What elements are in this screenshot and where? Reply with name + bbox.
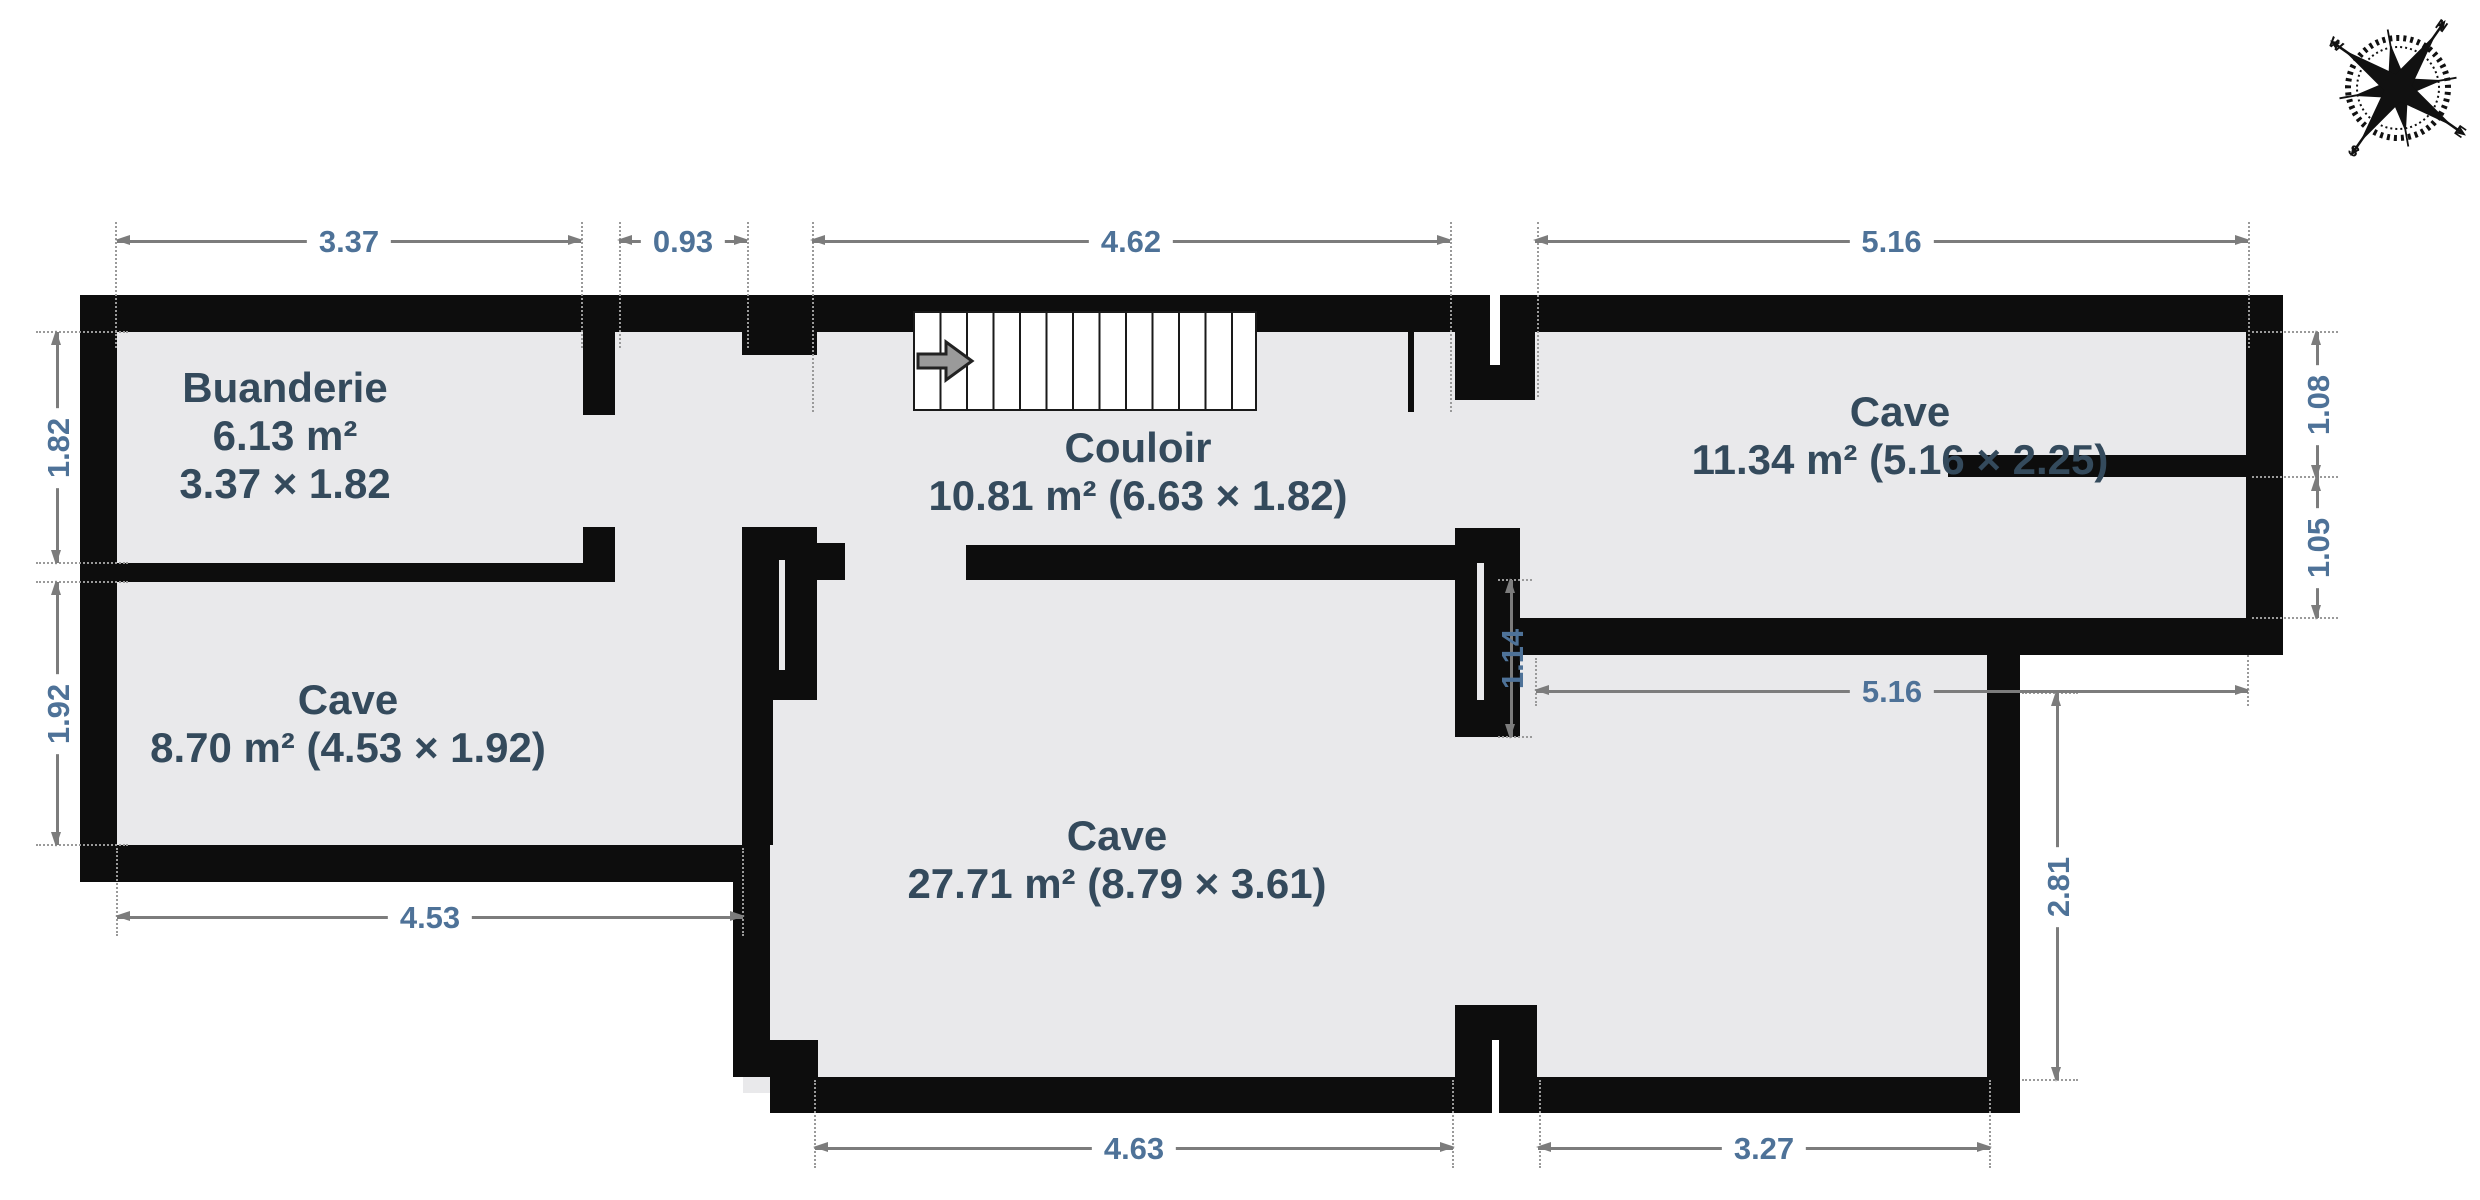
extension-line xyxy=(2252,476,2338,478)
wall-segment xyxy=(80,295,1490,332)
door-slit xyxy=(1477,563,1484,700)
dimension-value: 4.62 xyxy=(1089,225,1173,259)
room-label-buanderie: Buanderie 6.13 m² 3.37 × 1.82 xyxy=(179,364,390,508)
wall-segment xyxy=(80,845,770,882)
room-label-cave-left: Cave 8.70 m² (4.53 × 1.92) xyxy=(150,676,546,772)
dimension-top-cave-right: 5.16 xyxy=(1535,240,2248,243)
room-label-cave-main: Cave 27.71 m² (8.79 × 3.61) xyxy=(907,812,1326,908)
extension-line xyxy=(1537,222,1539,397)
dimension-right-lower: 1.05 xyxy=(2316,478,2319,618)
extension-line xyxy=(36,844,128,846)
room-name: Cave xyxy=(150,676,546,724)
extension-line xyxy=(116,848,118,936)
wall-segment xyxy=(1500,295,2283,332)
compass-east-label: E xyxy=(2451,122,2469,142)
dimension-value: 0.93 xyxy=(641,225,725,259)
wall-segment xyxy=(817,543,845,580)
extension-line xyxy=(36,581,128,583)
room-details: 11.34 m² (5.16 × 2.25) xyxy=(1692,436,2109,484)
wall-segment xyxy=(966,545,1460,580)
extension-line xyxy=(2252,331,2338,333)
compass-rose-icon: N E S W xyxy=(2313,3,2480,173)
dimension-value: 4.63 xyxy=(1092,1132,1176,1166)
room-area: 6.13 m² xyxy=(179,412,390,460)
extension-line xyxy=(1989,1080,1991,1168)
dimension-value: 3.27 xyxy=(1722,1132,1806,1166)
room-label-couloir: Couloir 10.81 m² (6.63 × 1.82) xyxy=(928,424,1347,520)
wall-segment xyxy=(742,332,817,355)
extension-line xyxy=(36,562,128,564)
dimension-value: 1.05 xyxy=(2302,508,2336,588)
dimension-value: 1.92 xyxy=(42,673,76,753)
room-name: Cave xyxy=(907,812,1326,860)
compass-south-label: S xyxy=(2345,142,2363,162)
room-details: 10.81 m² (6.63 × 1.82) xyxy=(928,472,1347,520)
dimension-value: 2.81 xyxy=(2042,846,2076,926)
dimension-value: 1.82 xyxy=(42,407,76,487)
dimension-value: 3.37 xyxy=(307,225,391,259)
room-details: 8.70 m² (4.53 × 1.92) xyxy=(150,724,546,772)
extension-line xyxy=(1535,658,1537,706)
wall-segment xyxy=(80,295,117,882)
extension-line xyxy=(812,222,814,412)
extension-line xyxy=(1498,736,1532,738)
dimension-bottom-cave-main: 4.63 xyxy=(815,1147,1453,1150)
room-name: Buanderie xyxy=(179,364,390,412)
wall-segment xyxy=(733,1040,818,1077)
dimension-interior-passage: 1.14 xyxy=(1510,580,1513,737)
door-slit xyxy=(1492,1040,1499,1113)
wall-segment xyxy=(1987,655,2020,1113)
wall-segment xyxy=(583,332,615,415)
extension-line xyxy=(2247,655,2249,706)
dimension-bottom-right: 3.27 xyxy=(1538,1147,1990,1150)
extension-line xyxy=(36,331,128,333)
stair-direction-arrow-icon xyxy=(916,337,978,385)
compass-north-label: N xyxy=(2432,16,2451,36)
dimension-top-buanderie: 3.37 xyxy=(117,240,581,243)
wall-segment xyxy=(1520,618,2283,655)
room-label-cave-right: Cave 11.34 m² (5.16 × 2.25) xyxy=(1692,388,2109,484)
dimension-top-couloir: 4.62 xyxy=(812,240,1450,243)
extension-line xyxy=(742,848,744,936)
dimension-interior-cave-right-width: 5.16 xyxy=(1536,690,2248,693)
door-slit xyxy=(779,560,785,670)
extension-line xyxy=(2252,617,2338,619)
compass-west-label: W xyxy=(2325,34,2347,57)
wall-segment xyxy=(1408,332,1414,412)
floor-plan-page: { "plan": { "type": "basement-floor-plan… xyxy=(0,0,2480,1200)
room-name: Cave xyxy=(1692,388,2109,436)
dimension-value: 5.16 xyxy=(1849,225,1933,259)
dimension-value: 1.08 xyxy=(2302,365,2336,445)
dimension-top-door: 0.93 xyxy=(619,240,747,243)
dimension-left-buanderie: 1.82 xyxy=(56,332,59,563)
dimension-value: 4.53 xyxy=(388,901,472,935)
room-name: Couloir xyxy=(928,424,1347,472)
dimension-interior-height: 2.81 xyxy=(2056,693,2059,1080)
dimension-bottom-cave-left: 4.53 xyxy=(117,916,743,919)
wall-segment xyxy=(770,1077,2020,1113)
extension-line xyxy=(1450,222,1452,412)
room-size: 3.37 × 1.82 xyxy=(179,460,390,508)
dimension-value: 5.16 xyxy=(1850,675,1934,709)
extension-line xyxy=(1498,579,1532,581)
dimension-left-cave: 1.92 xyxy=(56,582,59,845)
room-details: 27.71 m² (8.79 × 3.61) xyxy=(907,860,1326,908)
dimension-right-upper: 1.08 xyxy=(2316,332,2319,478)
extension-line xyxy=(1539,1080,1541,1168)
extension-line xyxy=(814,1080,816,1168)
wall-segment xyxy=(117,563,615,582)
dimension-value: 1.14 xyxy=(1496,624,1530,692)
wall-segment xyxy=(742,700,773,845)
door-slit xyxy=(1490,297,1500,365)
extension-line xyxy=(2022,1079,2078,1081)
wall-segment xyxy=(2246,295,2283,655)
extension-line xyxy=(1452,1080,1454,1168)
